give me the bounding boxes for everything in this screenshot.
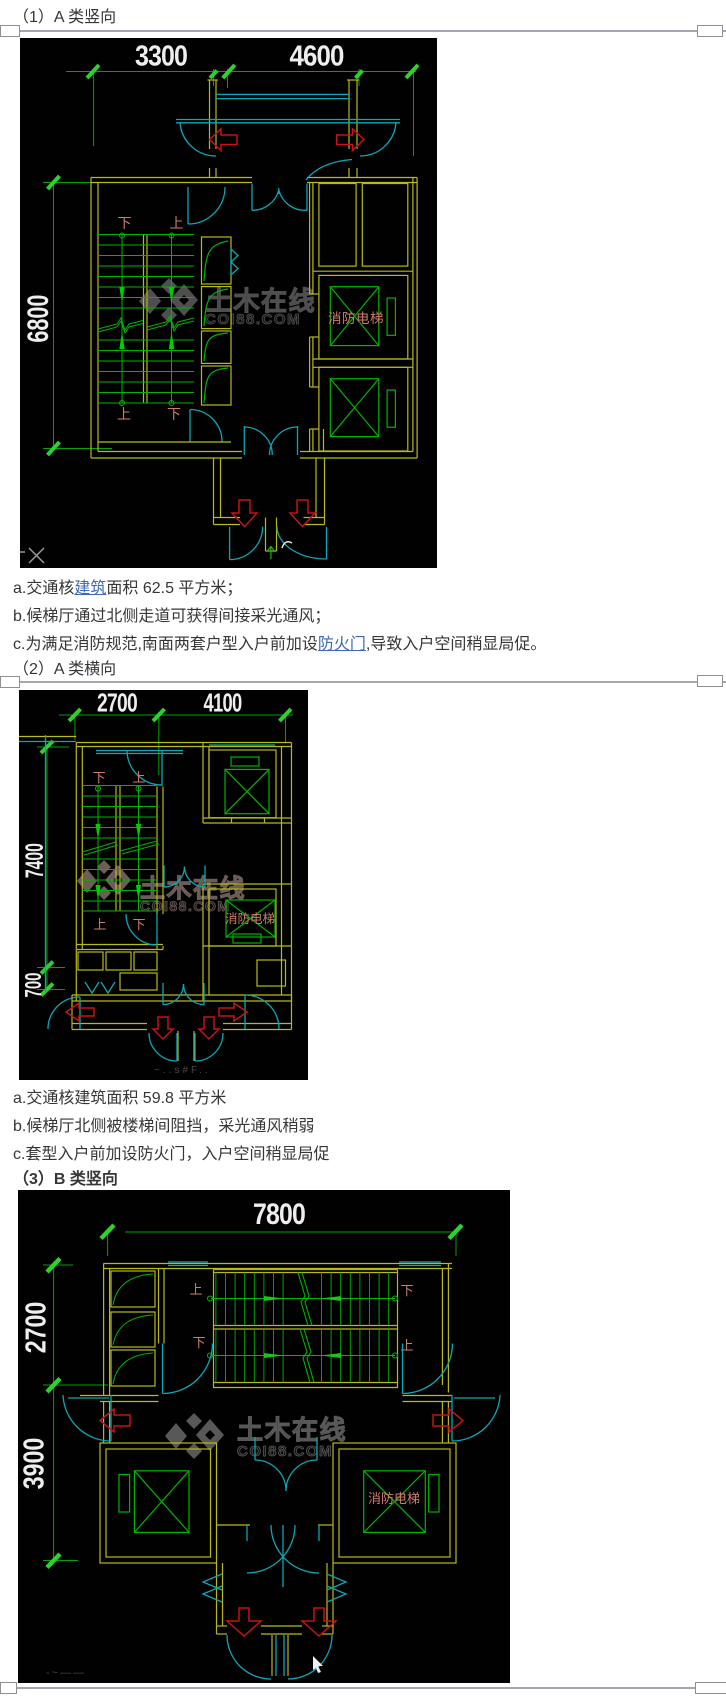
svg-text:上: 上 [189,1282,202,1297]
svg-text:3900: 3900 [18,1438,50,1490]
svg-text:6800: 6800 [20,295,54,343]
svg-text:下: 下 [167,406,181,422]
svg-text:4600: 4600 [290,41,344,73]
svg-text:上: 上 [93,917,106,932]
svg-text:7800: 7800 [253,1198,305,1231]
svg-text:消防电梯: 消防电梯 [368,1491,420,1506]
svg-text:下: 下 [400,1283,413,1298]
svg-text:2700: 2700 [19,1302,52,1354]
svg-text:土木在线: 土木在线 [237,1415,347,1445]
svg-text:上: 上 [132,770,145,785]
svg-text:上: 上 [117,406,131,422]
svg-text:~..s#F..: ~..s#F.. [154,1065,211,1076]
svg-text:4100: 4100 [204,690,242,718]
svg-text:2700: 2700 [97,690,137,718]
svg-text:消防电梯: 消防电梯 [328,311,384,326]
svg-text:3300: 3300 [135,41,187,73]
svg-text:下: 下 [132,917,145,932]
svg-text:上: 上 [170,215,184,231]
svg-text:上: 上 [400,1338,413,1353]
svg-text:700: 700 [21,973,47,998]
svg-text:下: 下 [92,770,105,785]
svg-text:COI88.COM: COI88.COM [237,1443,333,1460]
svg-text:COI88.COM: COI88.COM [140,898,231,914]
svg-text:COI88.COM: COI88.COM [205,311,301,328]
svg-text:下: 下 [118,215,132,231]
svg-text:下: 下 [192,1335,205,1350]
svg-text:消防电梯: 消防电梯 [225,911,275,926]
svg-text:-~——: -~—— [46,1667,86,1679]
